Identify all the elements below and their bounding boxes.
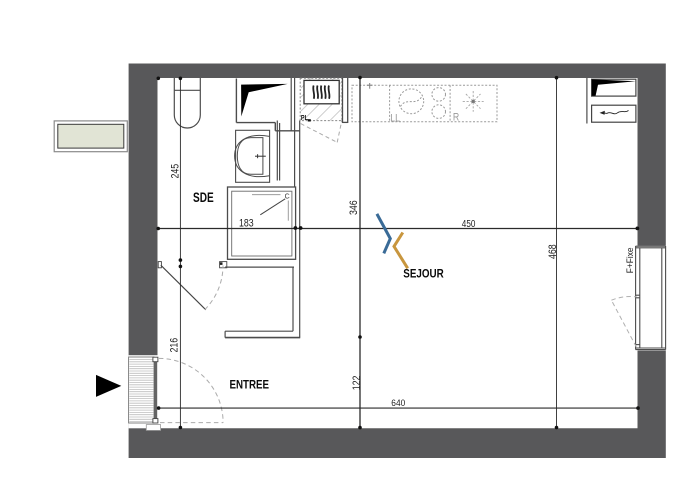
svg-text:640: 640 (391, 398, 405, 408)
svg-text:ENTREE: ENTREE (230, 379, 270, 392)
svg-text:SEJOUR: SEJOUR (403, 268, 444, 281)
svg-text:122: 122 (351, 375, 363, 390)
svg-text:183: 183 (239, 218, 254, 230)
svg-text:LL: LL (390, 113, 400, 125)
svg-text:245: 245 (169, 163, 181, 178)
svg-text:346: 346 (348, 200, 360, 215)
svg-text:R: R (453, 112, 459, 124)
svg-text:F+Fixe: F+Fixe (625, 247, 635, 273)
svg-text:450: 450 (462, 218, 476, 229)
svg-text:468: 468 (547, 244, 559, 259)
svg-text:SDE: SDE (193, 189, 214, 205)
svg-text:216: 216 (169, 337, 181, 352)
svg-text:PL: PL (301, 114, 308, 122)
svg-text:C: C (285, 193, 290, 200)
